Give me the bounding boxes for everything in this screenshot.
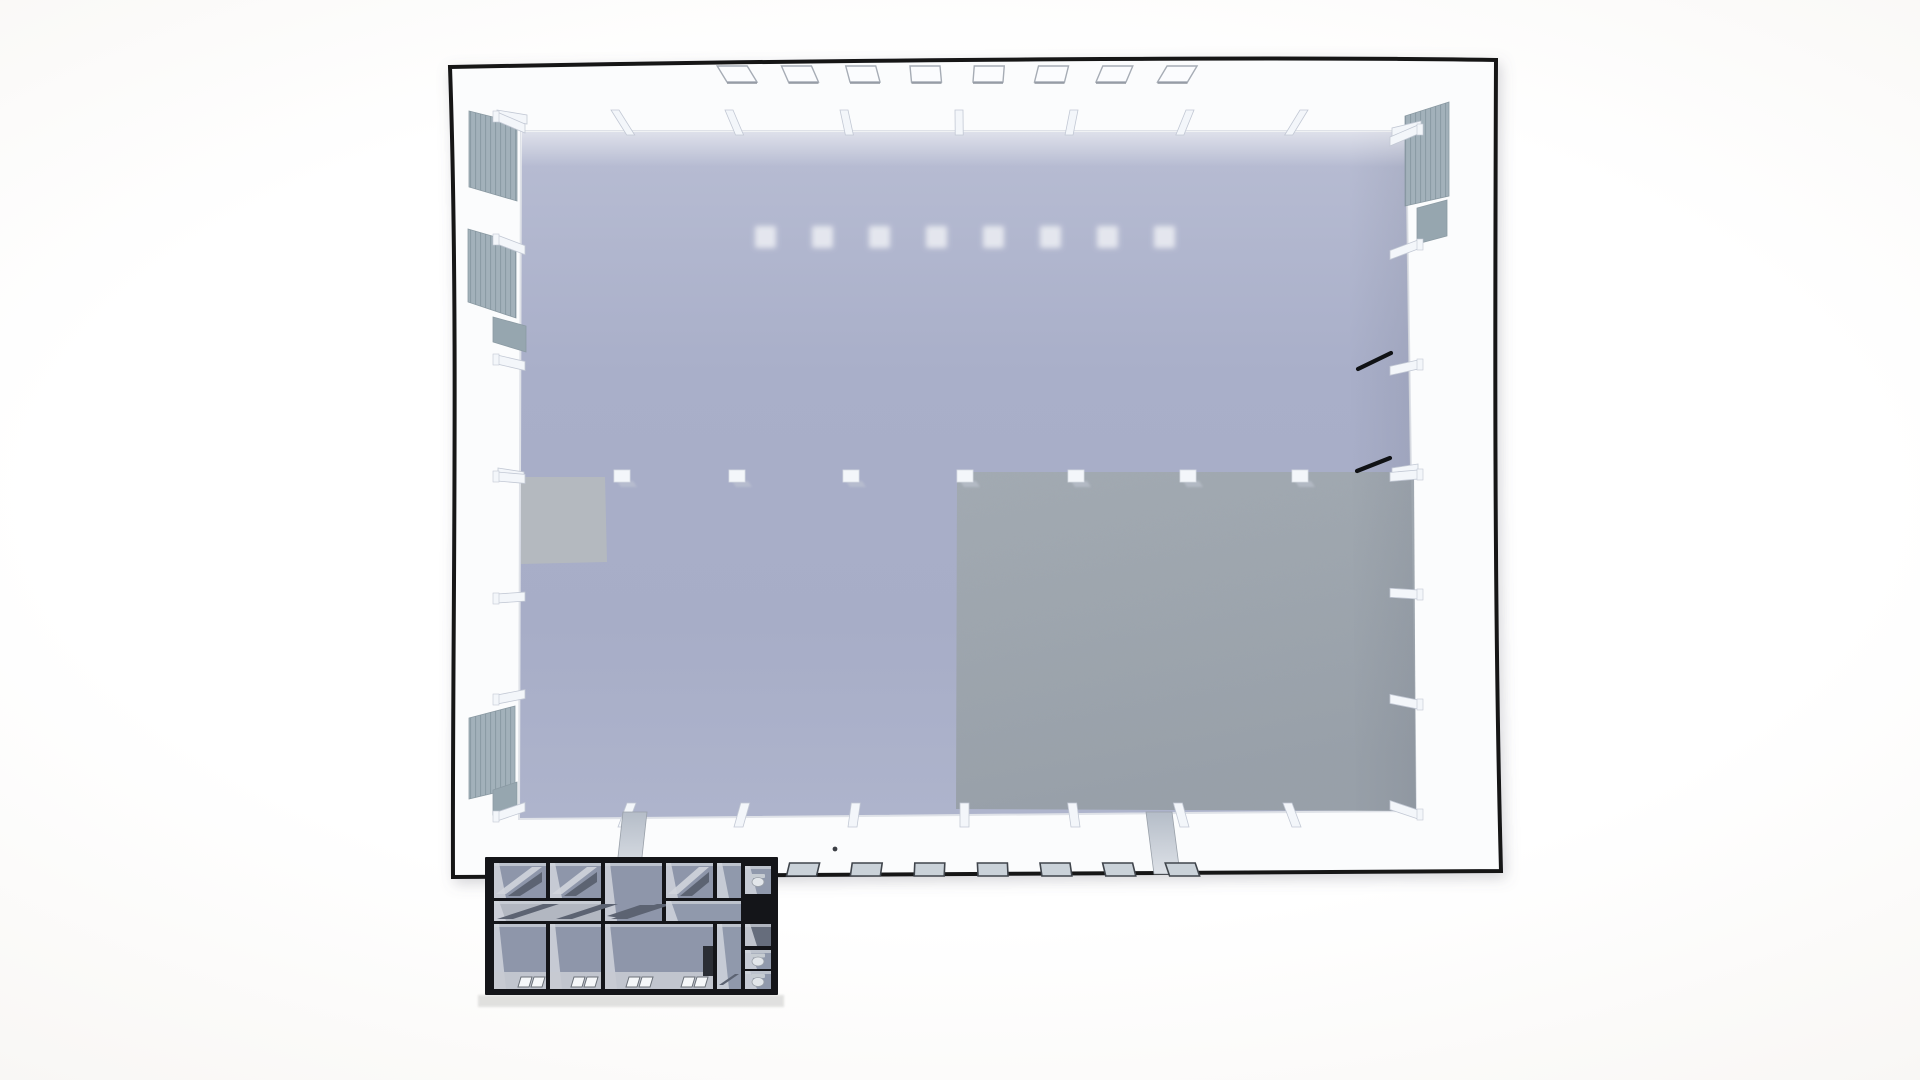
facade-window: [850, 863, 882, 876]
skylight: [1096, 66, 1133, 82]
column-cap: [493, 593, 499, 604]
facade-window: [914, 863, 945, 876]
annex-window-pane: [681, 977, 695, 987]
dark-floor-zone-texture: [956, 472, 1416, 811]
render-viewport: [0, 0, 1920, 1080]
floor-plan-render: [0, 0, 1920, 1080]
room-wall-highlight: [550, 863, 601, 866]
skylight: [1035, 66, 1069, 82]
hall-column: [1292, 470, 1308, 482]
annex-window-pane: [518, 977, 532, 987]
facade-window: [1040, 863, 1072, 876]
hall-column: [1180, 470, 1196, 482]
toilet-fixture: [752, 978, 764, 987]
room-wall-highlight: [717, 924, 741, 927]
right-wall-column: [1390, 470, 1418, 481]
column-cap: [1417, 239, 1423, 250]
skylight: [910, 66, 942, 82]
top-wall-floor-glow: [521, 131, 1406, 167]
room-wall-highlight: [666, 863, 713, 866]
toilet-fixture: [752, 878, 764, 887]
skylight-light-patch: [1154, 226, 1175, 248]
annex-window-pane: [571, 977, 585, 987]
room-wall-highlight: [494, 863, 546, 866]
hall-column: [957, 470, 973, 482]
skylight: [846, 66, 880, 82]
hall-column: [729, 470, 745, 482]
room-wall-highlight: [745, 950, 771, 953]
room-wall-highlight: [550, 924, 601, 927]
column-cap: [493, 811, 499, 822]
facade-window: [977, 863, 1008, 876]
annex-window-pane: [626, 977, 640, 987]
bottom-wall-column: [960, 803, 969, 827]
left-wall-column: [497, 592, 525, 603]
toilet-fixture: [752, 957, 764, 966]
skylight-light-patch: [1097, 226, 1118, 248]
column-cap: [1417, 469, 1423, 480]
room-wall-highlight: [717, 863, 741, 866]
hall-column: [614, 470, 630, 482]
skylight: [973, 66, 1004, 82]
column-cap: [493, 111, 499, 122]
office-annex: [478, 857, 784, 1007]
top-wall-beam: [955, 110, 963, 135]
door-panel-slats: [1405, 102, 1449, 206]
annex-window-pane: [639, 977, 653, 987]
room-wall-highlight: [666, 901, 741, 904]
facade-window: [1165, 863, 1199, 876]
facade-window: [1103, 863, 1136, 876]
small-wall-panel: [1417, 200, 1447, 244]
column-cap: [1417, 359, 1423, 370]
light-floor-patch: [521, 477, 607, 564]
room-wall-highlight: [745, 924, 771, 927]
room-wall-highlight: [745, 866, 771, 869]
room-wall-highlight: [494, 924, 546, 927]
annex-window-pane: [584, 977, 598, 987]
skylight-light-patch: [812, 226, 833, 248]
column-cap: [493, 354, 499, 365]
left-wall-column: [497, 472, 525, 483]
facade-window: [786, 863, 819, 876]
room-wall-highlight: [494, 901, 601, 904]
right-wall-column: [1390, 588, 1418, 599]
main-hall: [450, 59, 1501, 877]
hall-column: [843, 470, 859, 482]
skylight-light-patch: [755, 226, 776, 248]
room-wall-highlight: [605, 863, 662, 866]
skylight-light-patch: [926, 226, 947, 248]
column-cap: [1417, 124, 1423, 135]
column-cap: [493, 471, 499, 482]
column-cap: [493, 234, 499, 245]
room-wall-highlight: [605, 924, 713, 927]
room-closet: [703, 946, 713, 976]
skylight-light-patch: [983, 226, 1004, 248]
room-wall-highlight: [745, 971, 771, 974]
column-cap: [493, 694, 499, 705]
column-cap: [1417, 809, 1423, 820]
skylight-light-patch: [869, 226, 890, 248]
column-cap: [1417, 589, 1423, 600]
column-cap: [1417, 699, 1423, 710]
annex-ground-strip: [478, 995, 784, 1007]
wall-dot: [833, 847, 838, 852]
annex-window-pane: [694, 977, 708, 987]
annex-window-pane: [531, 977, 545, 987]
skylight-light-patch: [1040, 226, 1061, 248]
skylight: [781, 66, 818, 82]
hall-column: [1068, 470, 1084, 482]
